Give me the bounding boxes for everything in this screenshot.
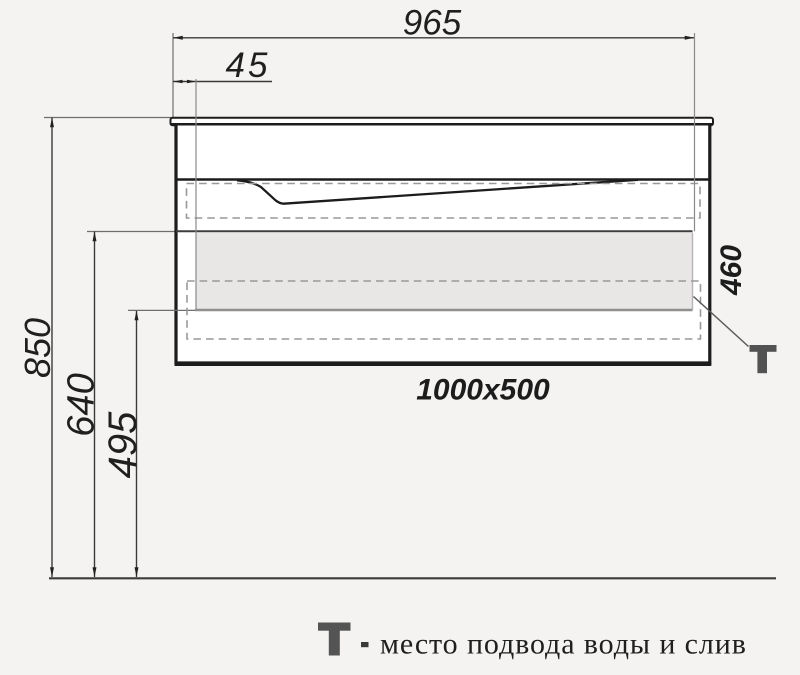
svg-text:место подвода воды и слив: место подвода воды и слив xyxy=(380,628,747,661)
svg-text:965: 965 xyxy=(403,4,462,43)
svg-text:850: 850 xyxy=(17,318,58,378)
svg-text:640: 640 xyxy=(61,373,103,436)
svg-text:1000x500: 1000x500 xyxy=(416,374,550,407)
svg-text:495: 495 xyxy=(101,411,145,478)
svg-text:45: 45 xyxy=(226,46,271,85)
svg-text:460: 460 xyxy=(715,245,748,296)
